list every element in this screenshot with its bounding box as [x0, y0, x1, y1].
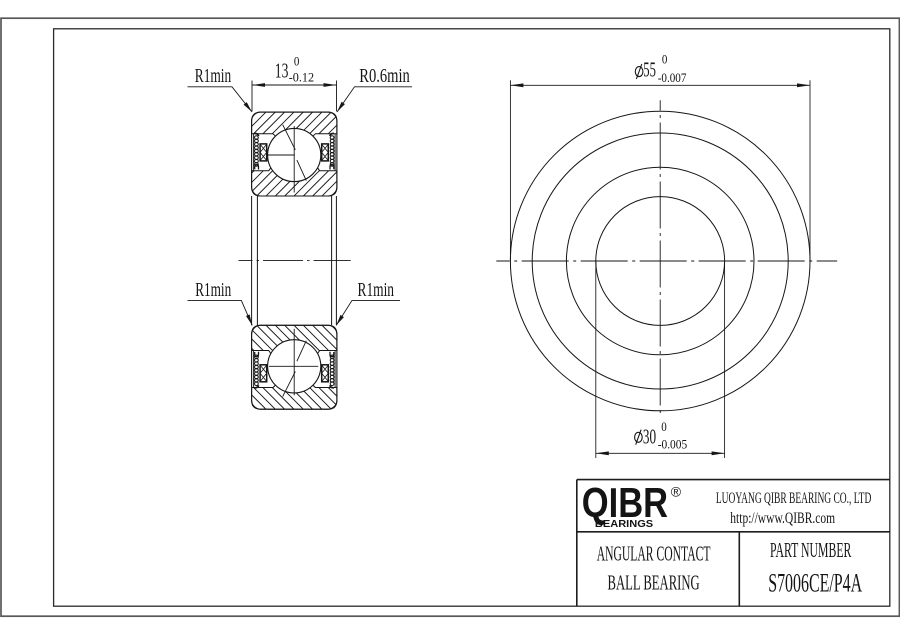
svg-text:-0.007: -0.007	[658, 70, 687, 85]
svg-text:R1min: R1min	[195, 279, 231, 301]
svg-text:R0.6min: R0.6min	[359, 65, 410, 87]
svg-text:BALL BEARING: BALL BEARING	[608, 571, 700, 595]
svg-text:13: 13	[275, 59, 289, 83]
svg-text:0: 0	[661, 419, 667, 434]
svg-text:55: 55	[643, 57, 656, 81]
svg-text:®: ®	[671, 484, 682, 500]
svg-text:PART NUMBER: PART NUMBER	[770, 538, 852, 562]
svg-text:0: 0	[294, 53, 300, 68]
svg-text:R1min: R1min	[358, 279, 395, 301]
svg-text:-0.005: -0.005	[658, 437, 688, 452]
svg-text:BEARINGS: BEARINGS	[595, 518, 653, 530]
svg-text:S7006CE/P4A: S7006CE/P4A	[768, 569, 862, 598]
svg-text:LUOYANG QIBR BEARING CO., LTD: LUOYANG QIBR BEARING CO., LTD	[716, 490, 871, 507]
svg-text:ANGULAR CONTACT: ANGULAR CONTACT	[597, 542, 711, 566]
svg-text:0: 0	[662, 52, 668, 67]
svg-text:R1min: R1min	[195, 65, 231, 87]
svg-text:30: 30	[643, 425, 656, 449]
svg-text:-0.12: -0.12	[289, 69, 314, 84]
svg-text:http://www.QIBR.com: http://www.QIBR.com	[730, 510, 835, 527]
